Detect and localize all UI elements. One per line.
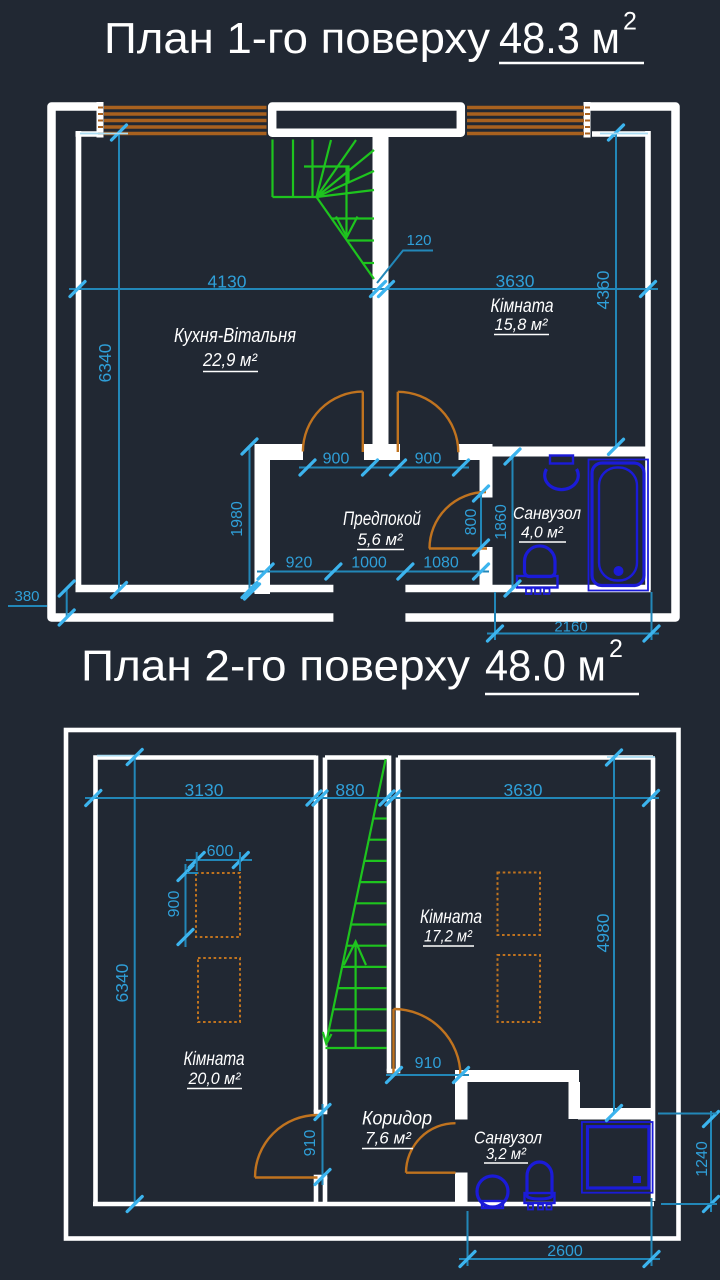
svg-text:120: 120 xyxy=(406,232,431,249)
svg-text:4360: 4360 xyxy=(593,270,613,309)
svg-text:3,2 м²: 3,2 м² xyxy=(486,1146,527,1163)
svg-text:900: 900 xyxy=(166,891,183,918)
svg-text:20,0 м²: 20,0 м² xyxy=(188,1069,242,1088)
svg-text:2: 2 xyxy=(609,635,623,663)
svg-text:1240: 1240 xyxy=(694,1141,711,1177)
svg-text:Санвузол: Санвузол xyxy=(513,503,581,523)
svg-text:910: 910 xyxy=(302,1130,319,1157)
svg-text:48.0 м: 48.0 м xyxy=(485,642,606,691)
svg-text:План 1-го поверху: План 1-го поверху xyxy=(104,14,490,63)
svg-text:1860: 1860 xyxy=(493,504,510,540)
svg-text:2600: 2600 xyxy=(547,1243,583,1260)
svg-text:Коридор: Коридор xyxy=(362,1109,432,1130)
svg-text:1980: 1980 xyxy=(229,501,246,537)
svg-text:2: 2 xyxy=(623,8,637,36)
svg-text:17,2 м²: 17,2 м² xyxy=(424,927,473,946)
svg-text:4,0 м²: 4,0 м² xyxy=(521,525,564,542)
svg-text:1000: 1000 xyxy=(351,555,387,572)
svg-text:880: 880 xyxy=(335,780,364,800)
svg-text:4980: 4980 xyxy=(593,913,613,952)
svg-text:5,6 м²: 5,6 м² xyxy=(358,530,404,549)
svg-text:Кухня-Вітальня: Кухня-Вітальня xyxy=(174,325,296,347)
svg-text:2160: 2160 xyxy=(554,619,587,636)
svg-text:3630: 3630 xyxy=(504,780,543,800)
svg-text:3630: 3630 xyxy=(496,271,535,291)
svg-text:900: 900 xyxy=(415,451,442,468)
svg-text:4130: 4130 xyxy=(208,272,247,292)
svg-text:Санвузол: Санвузол xyxy=(474,1128,542,1148)
svg-text:800: 800 xyxy=(463,509,480,536)
svg-text:Кімната: Кімната xyxy=(491,296,554,317)
svg-text:7,6 м²: 7,6 м² xyxy=(365,1129,412,1148)
svg-text:Кімната: Кімната xyxy=(184,1049,245,1070)
svg-text:48.3 м: 48.3 м xyxy=(499,14,620,63)
svg-text:900: 900 xyxy=(323,451,350,468)
svg-text:6340: 6340 xyxy=(112,963,132,1002)
svg-text:3130: 3130 xyxy=(185,780,224,800)
svg-text:План 2-го поверху: План 2-го поверху xyxy=(81,642,470,691)
svg-text:1080: 1080 xyxy=(423,555,459,572)
svg-text:600: 600 xyxy=(207,843,234,860)
svg-text:22,9 м²: 22,9 м² xyxy=(202,350,258,370)
svg-text:Предпокой: Предпокой xyxy=(343,509,421,530)
svg-text:15,8 м²: 15,8 м² xyxy=(495,315,549,334)
svg-text:910: 910 xyxy=(415,1055,442,1072)
svg-text:380: 380 xyxy=(14,588,39,605)
svg-text:Кімната: Кімната xyxy=(420,907,482,928)
svg-text:920: 920 xyxy=(286,555,313,572)
svg-text:6340: 6340 xyxy=(95,343,115,382)
